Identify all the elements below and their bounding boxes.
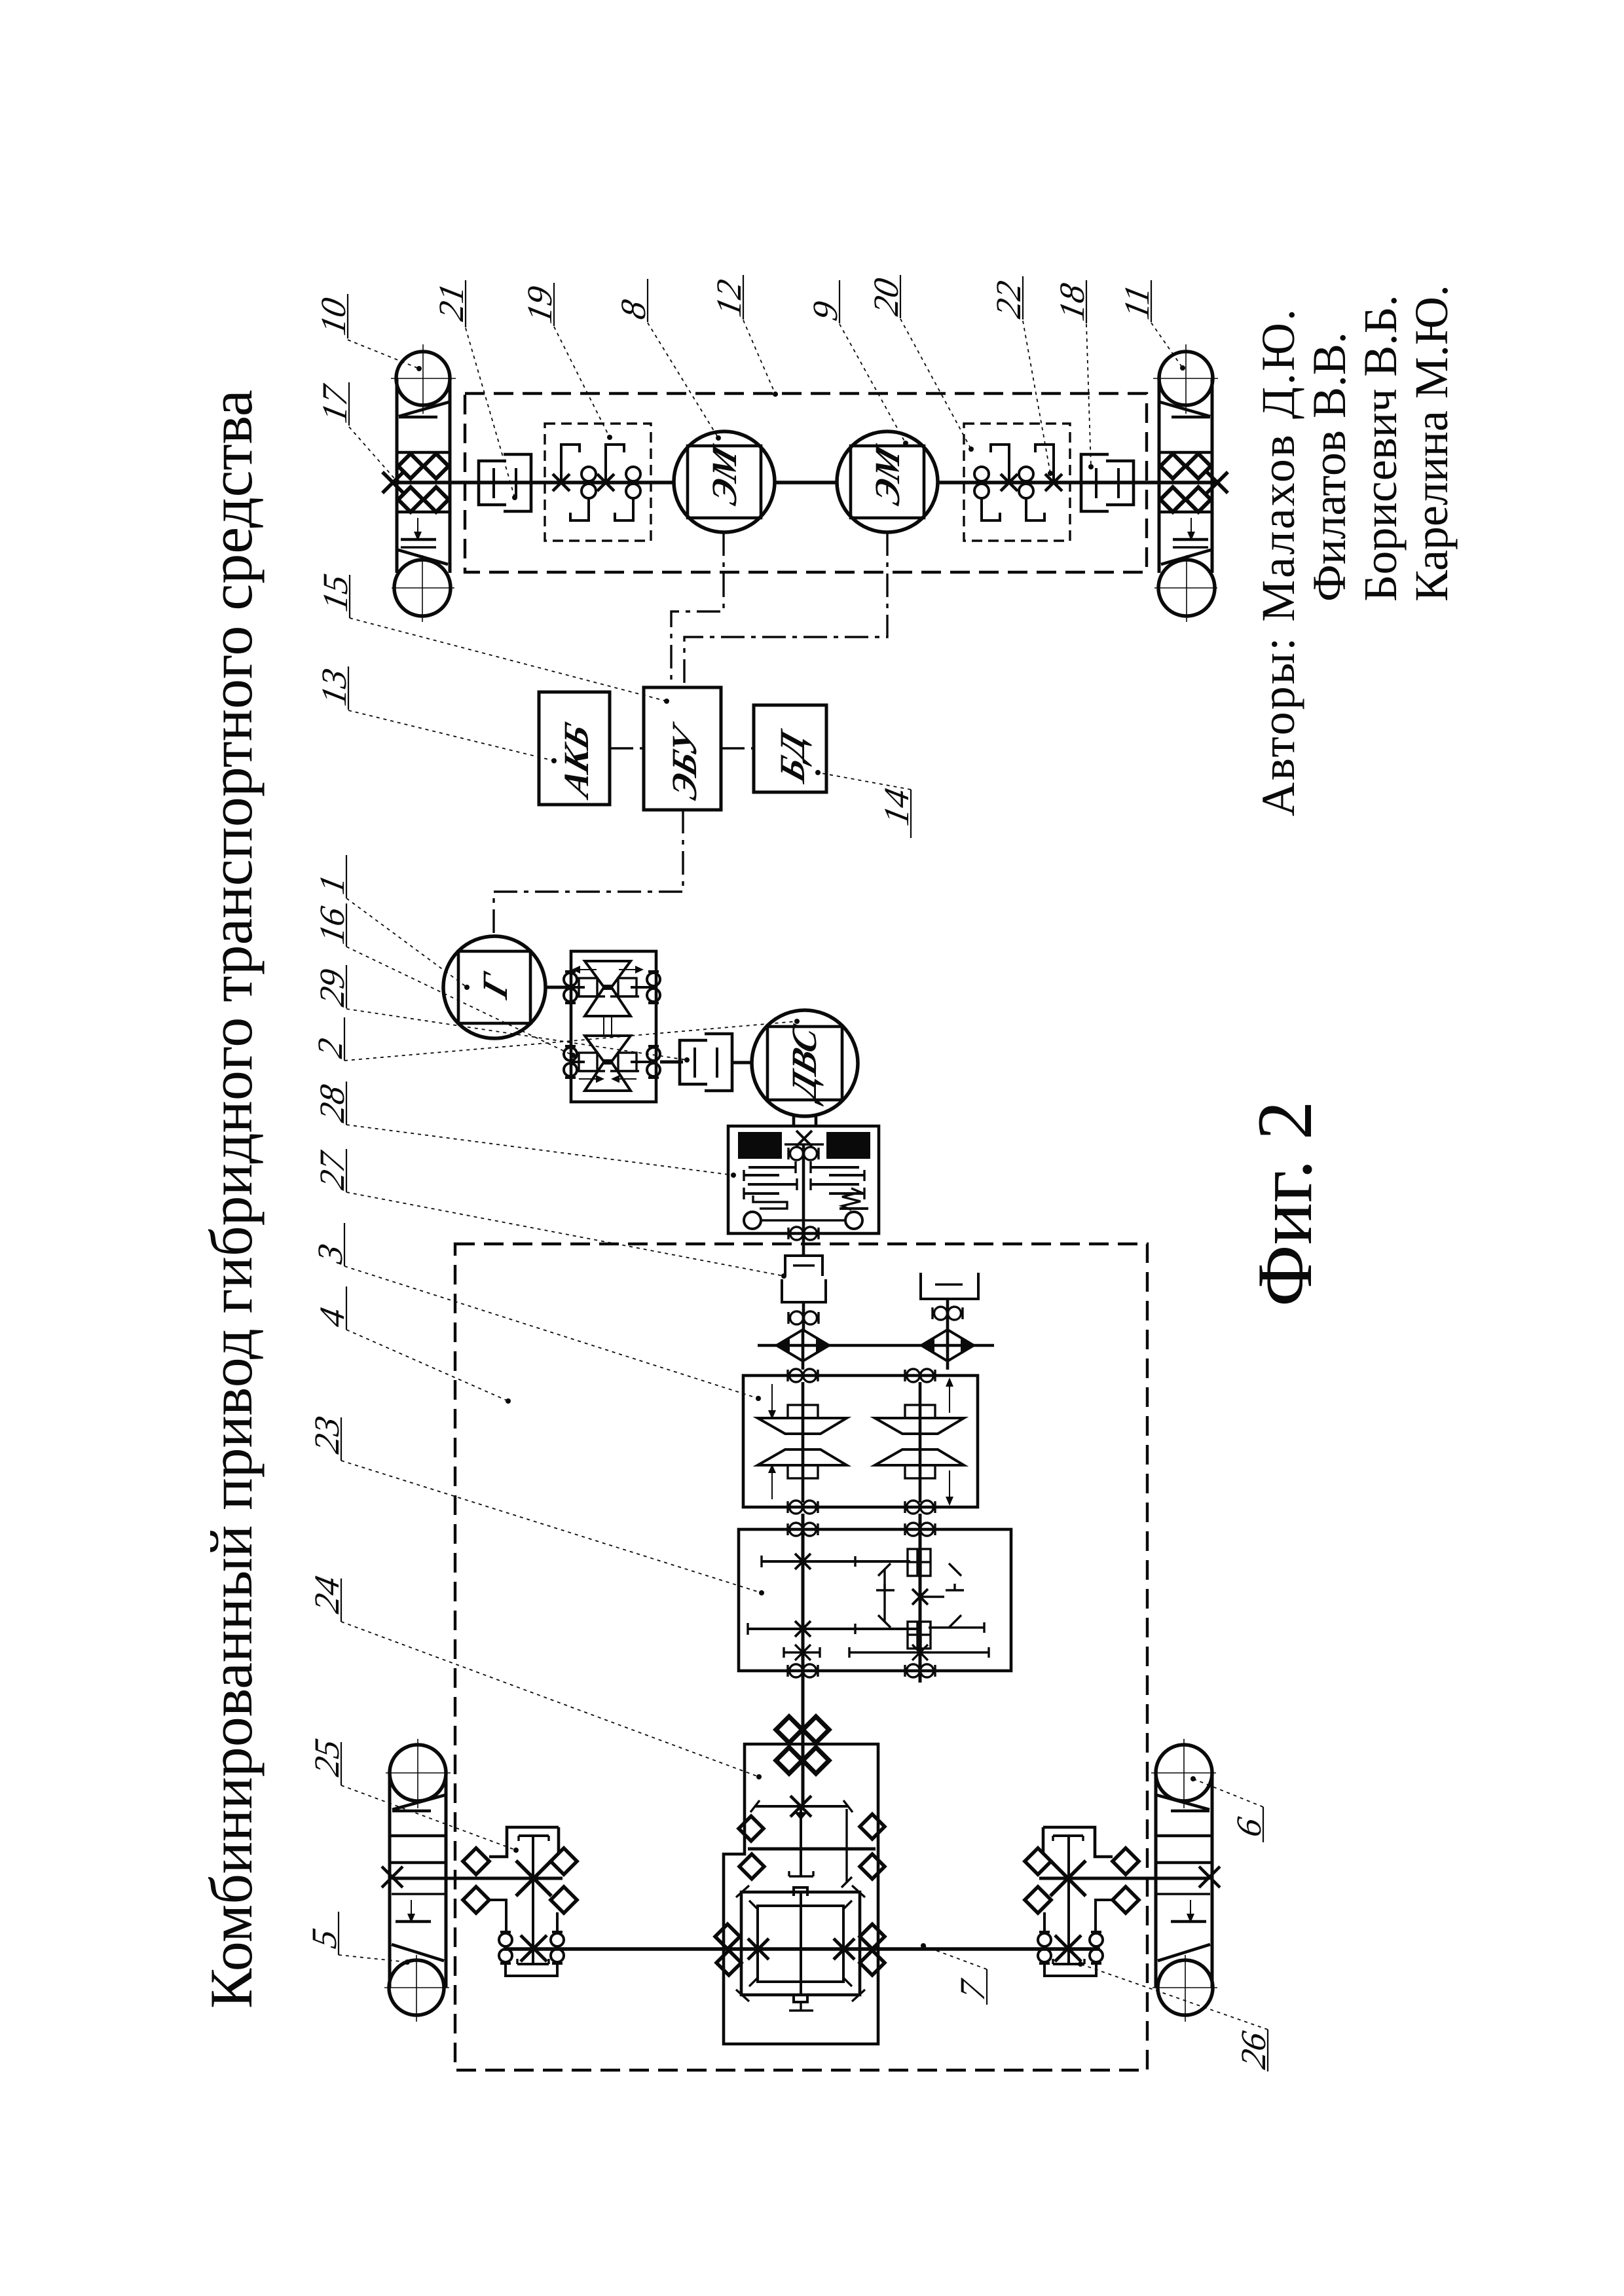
svg-text:Карелина М.Ю.: Карелина М.Ю. — [1405, 285, 1458, 602]
svg-text:Авторы: Малахов Д.Ю.: Авторы: Малахов Д.Ю. — [1252, 307, 1304, 816]
svg-text:Борисевич В.Б.: Борисевич В.Б. — [1354, 295, 1407, 602]
svg-text:Комбинированный привод гибридн: Комбинированный привод гибридного трансп… — [198, 390, 265, 2009]
svg-text:Фиг. 2: Фиг. 2 — [1241, 1101, 1328, 1307]
svg-text:Филатов В.В.: Филатов В.В. — [1303, 332, 1356, 602]
